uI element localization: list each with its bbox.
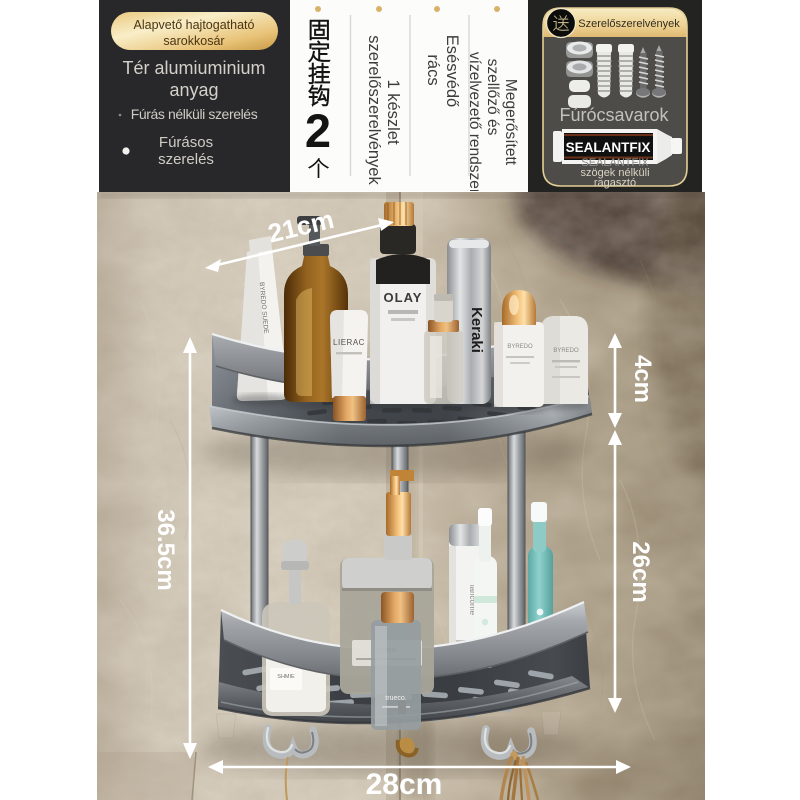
svg-text:rács: rács [424, 54, 442, 85]
svg-text:2: 2 [305, 104, 331, 157]
svg-text:Fúrásos: Fúrásos [159, 134, 213, 151]
svg-text:Esésvédő: Esésvédő [443, 35, 461, 107]
svg-text:szerelés: szerelés [158, 151, 214, 168]
svg-text:szellőző és: szellőző és [484, 59, 501, 136]
svg-text:OLAY: OLAY [384, 290, 423, 305]
svg-text:4cm: 4cm [629, 355, 656, 403]
svg-text:SEALANTFIX: SEALANTFIX [566, 140, 651, 155]
svg-text:36.5cm: 36.5cm [152, 509, 179, 590]
svg-text:Szerelőszerelvények: Szerelőszerelvények [578, 18, 680, 30]
svg-text:Keraki: Keraki [468, 307, 485, 353]
svg-text:Fúrócsavarok: Fúrócsavarok [559, 105, 669, 125]
svg-text:LIERAC: LIERAC [333, 338, 365, 347]
svg-text:szerelőszerelvények: szerelőszerelvények [365, 35, 383, 185]
svg-text:Fúrás nélküli szerelés: Fúrás nélküli szerelés [131, 106, 258, 122]
svg-text:26cm: 26cm [627, 541, 654, 602]
svg-text:vízelvezető rendszer: vízelvezető rendszer [466, 52, 483, 194]
svg-text:28cm: 28cm [366, 768, 443, 800]
svg-text:BYREDO: BYREDO [507, 344, 533, 350]
svg-text:anyag: anyag [169, 80, 218, 100]
svg-text:Megerősített: Megerősített [502, 79, 519, 166]
svg-text:SHMIE: SHMIE [277, 674, 295, 680]
svg-text:BYREDO: BYREDO [553, 348, 579, 354]
svg-text:ragasztó: ragasztó [594, 177, 636, 189]
svg-text:Alapvető hajtogatható: Alapvető hajtogatható [134, 18, 255, 32]
svg-text:1 készlet: 1 készlet [384, 79, 402, 145]
svg-text:sarokkosár: sarokkosár [163, 34, 224, 48]
svg-text:Tér alumiuminium: Tér alumiuminium [122, 58, 265, 78]
